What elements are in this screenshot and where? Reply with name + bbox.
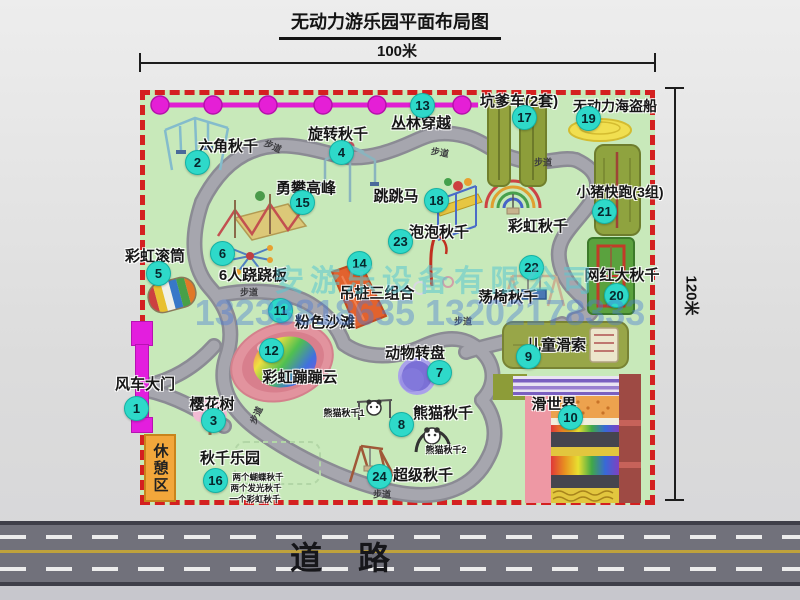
badge-21: 21 (592, 199, 617, 224)
rest-area-label: 休憩区 (150, 443, 171, 494)
badge-4: 4 (329, 140, 354, 165)
badge-12: 12 (259, 338, 284, 363)
label-jumping-horse: 跳跳马 (373, 185, 418, 206)
badge-16: 16 (203, 468, 228, 493)
dimension-line-top (140, 62, 656, 64)
road: 道路 (0, 521, 800, 586)
badge-17: 17 (512, 105, 537, 130)
badge-7: 7 (427, 360, 452, 385)
badge-23: 23 (388, 229, 413, 254)
watermark-phone: 13233818635 13202178333 (195, 292, 645, 334)
label-rainbow-swing: 彩虹秋千 (508, 215, 568, 236)
rest-area: 休憩区 (144, 434, 176, 502)
label-hexagon-swing: 六角秋千 (198, 135, 258, 156)
dimension-tick-top-left (139, 53, 141, 72)
label-panda-swing-2: 熊猫秋千2 (425, 443, 466, 456)
dimension-width-label: 100米 (377, 40, 417, 61)
label-panda-swing-1: 熊猫秋千1 (323, 406, 364, 419)
page-title: 无动力游乐园平面布局图 (279, 8, 501, 40)
badge-8: 8 (389, 412, 414, 437)
badge-18: 18 (424, 188, 449, 213)
dimension-tick-right-top (665, 87, 684, 89)
badge-19: 19 (576, 106, 601, 131)
road-label: 道路 (290, 533, 426, 579)
badge-3: 3 (201, 408, 226, 433)
park-plan-screenshot: 无动力游乐园平面布局图 100米 120米 (0, 0, 800, 600)
label-super-swing: 超级秋千 (393, 464, 453, 485)
below-road-ground (0, 586, 800, 600)
walkway-label: 步道 (534, 156, 552, 169)
badge-5: 5 (146, 261, 171, 286)
label-bubble-swing: 泡泡秋千 (409, 221, 469, 242)
badge-24: 24 (367, 464, 392, 489)
label-pig-run: 小猪快跑(3组) (576, 182, 663, 202)
label-swing-detail-3: 一个彩虹秋千 (229, 493, 280, 505)
badge-13: 13 (410, 93, 435, 118)
badge-9: 9 (516, 344, 541, 369)
badge-2: 2 (185, 150, 210, 175)
dimension-tick-top-right (654, 53, 656, 72)
windmill-gate-icon (132, 322, 152, 345)
label-rainbow-cloud: 彩虹蹦蹦云 (262, 366, 337, 387)
label-swing-paradise: 秋千乐园 (200, 447, 260, 468)
badge-10: 10 (558, 405, 583, 430)
badge-6: 6 (210, 241, 235, 266)
dimension-height-label: 120米 (682, 275, 703, 315)
badge-15: 15 (290, 190, 315, 215)
label-panda-swing: 熊猫秋千 (413, 402, 473, 423)
walkway-label: 步道 (373, 488, 391, 501)
dimension-line-right (674, 88, 676, 501)
badge-1: 1 (124, 396, 149, 421)
label-windmill-gate: 风车大门 (115, 373, 175, 394)
dimension-tick-right-bottom (665, 499, 684, 501)
